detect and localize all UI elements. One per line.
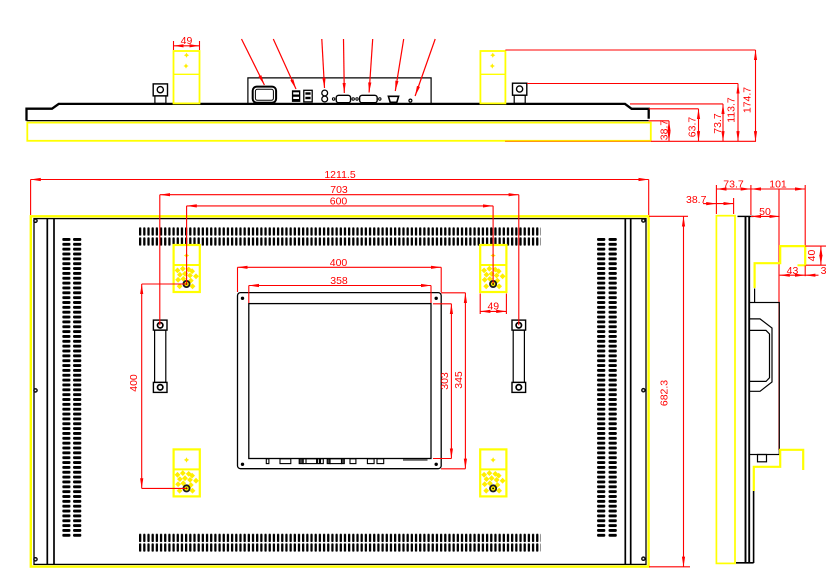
svg-text:400: 400 <box>128 374 140 392</box>
svg-text:49: 49 <box>181 35 193 47</box>
svg-text:113.7: 113.7 <box>726 97 738 123</box>
svg-text:50: 50 <box>759 206 771 218</box>
svg-text:682.3: 682.3 <box>659 380 671 406</box>
svg-text:38.7: 38.7 <box>659 120 671 141</box>
svg-text:43: 43 <box>787 265 799 277</box>
svg-text:49: 49 <box>487 301 499 313</box>
svg-text:73.7: 73.7 <box>712 113 724 134</box>
svg-text:345: 345 <box>453 371 465 389</box>
svg-text:3: 3 <box>821 265 827 277</box>
svg-text:174.7: 174.7 <box>742 87 754 113</box>
svg-text:40: 40 <box>806 250 818 262</box>
svg-text:73.7: 73.7 <box>723 178 744 190</box>
svg-text:63.7: 63.7 <box>687 117 699 138</box>
svg-text:101: 101 <box>769 178 787 190</box>
svg-text:38.7: 38.7 <box>686 194 707 206</box>
svg-text:303: 303 <box>439 372 451 390</box>
